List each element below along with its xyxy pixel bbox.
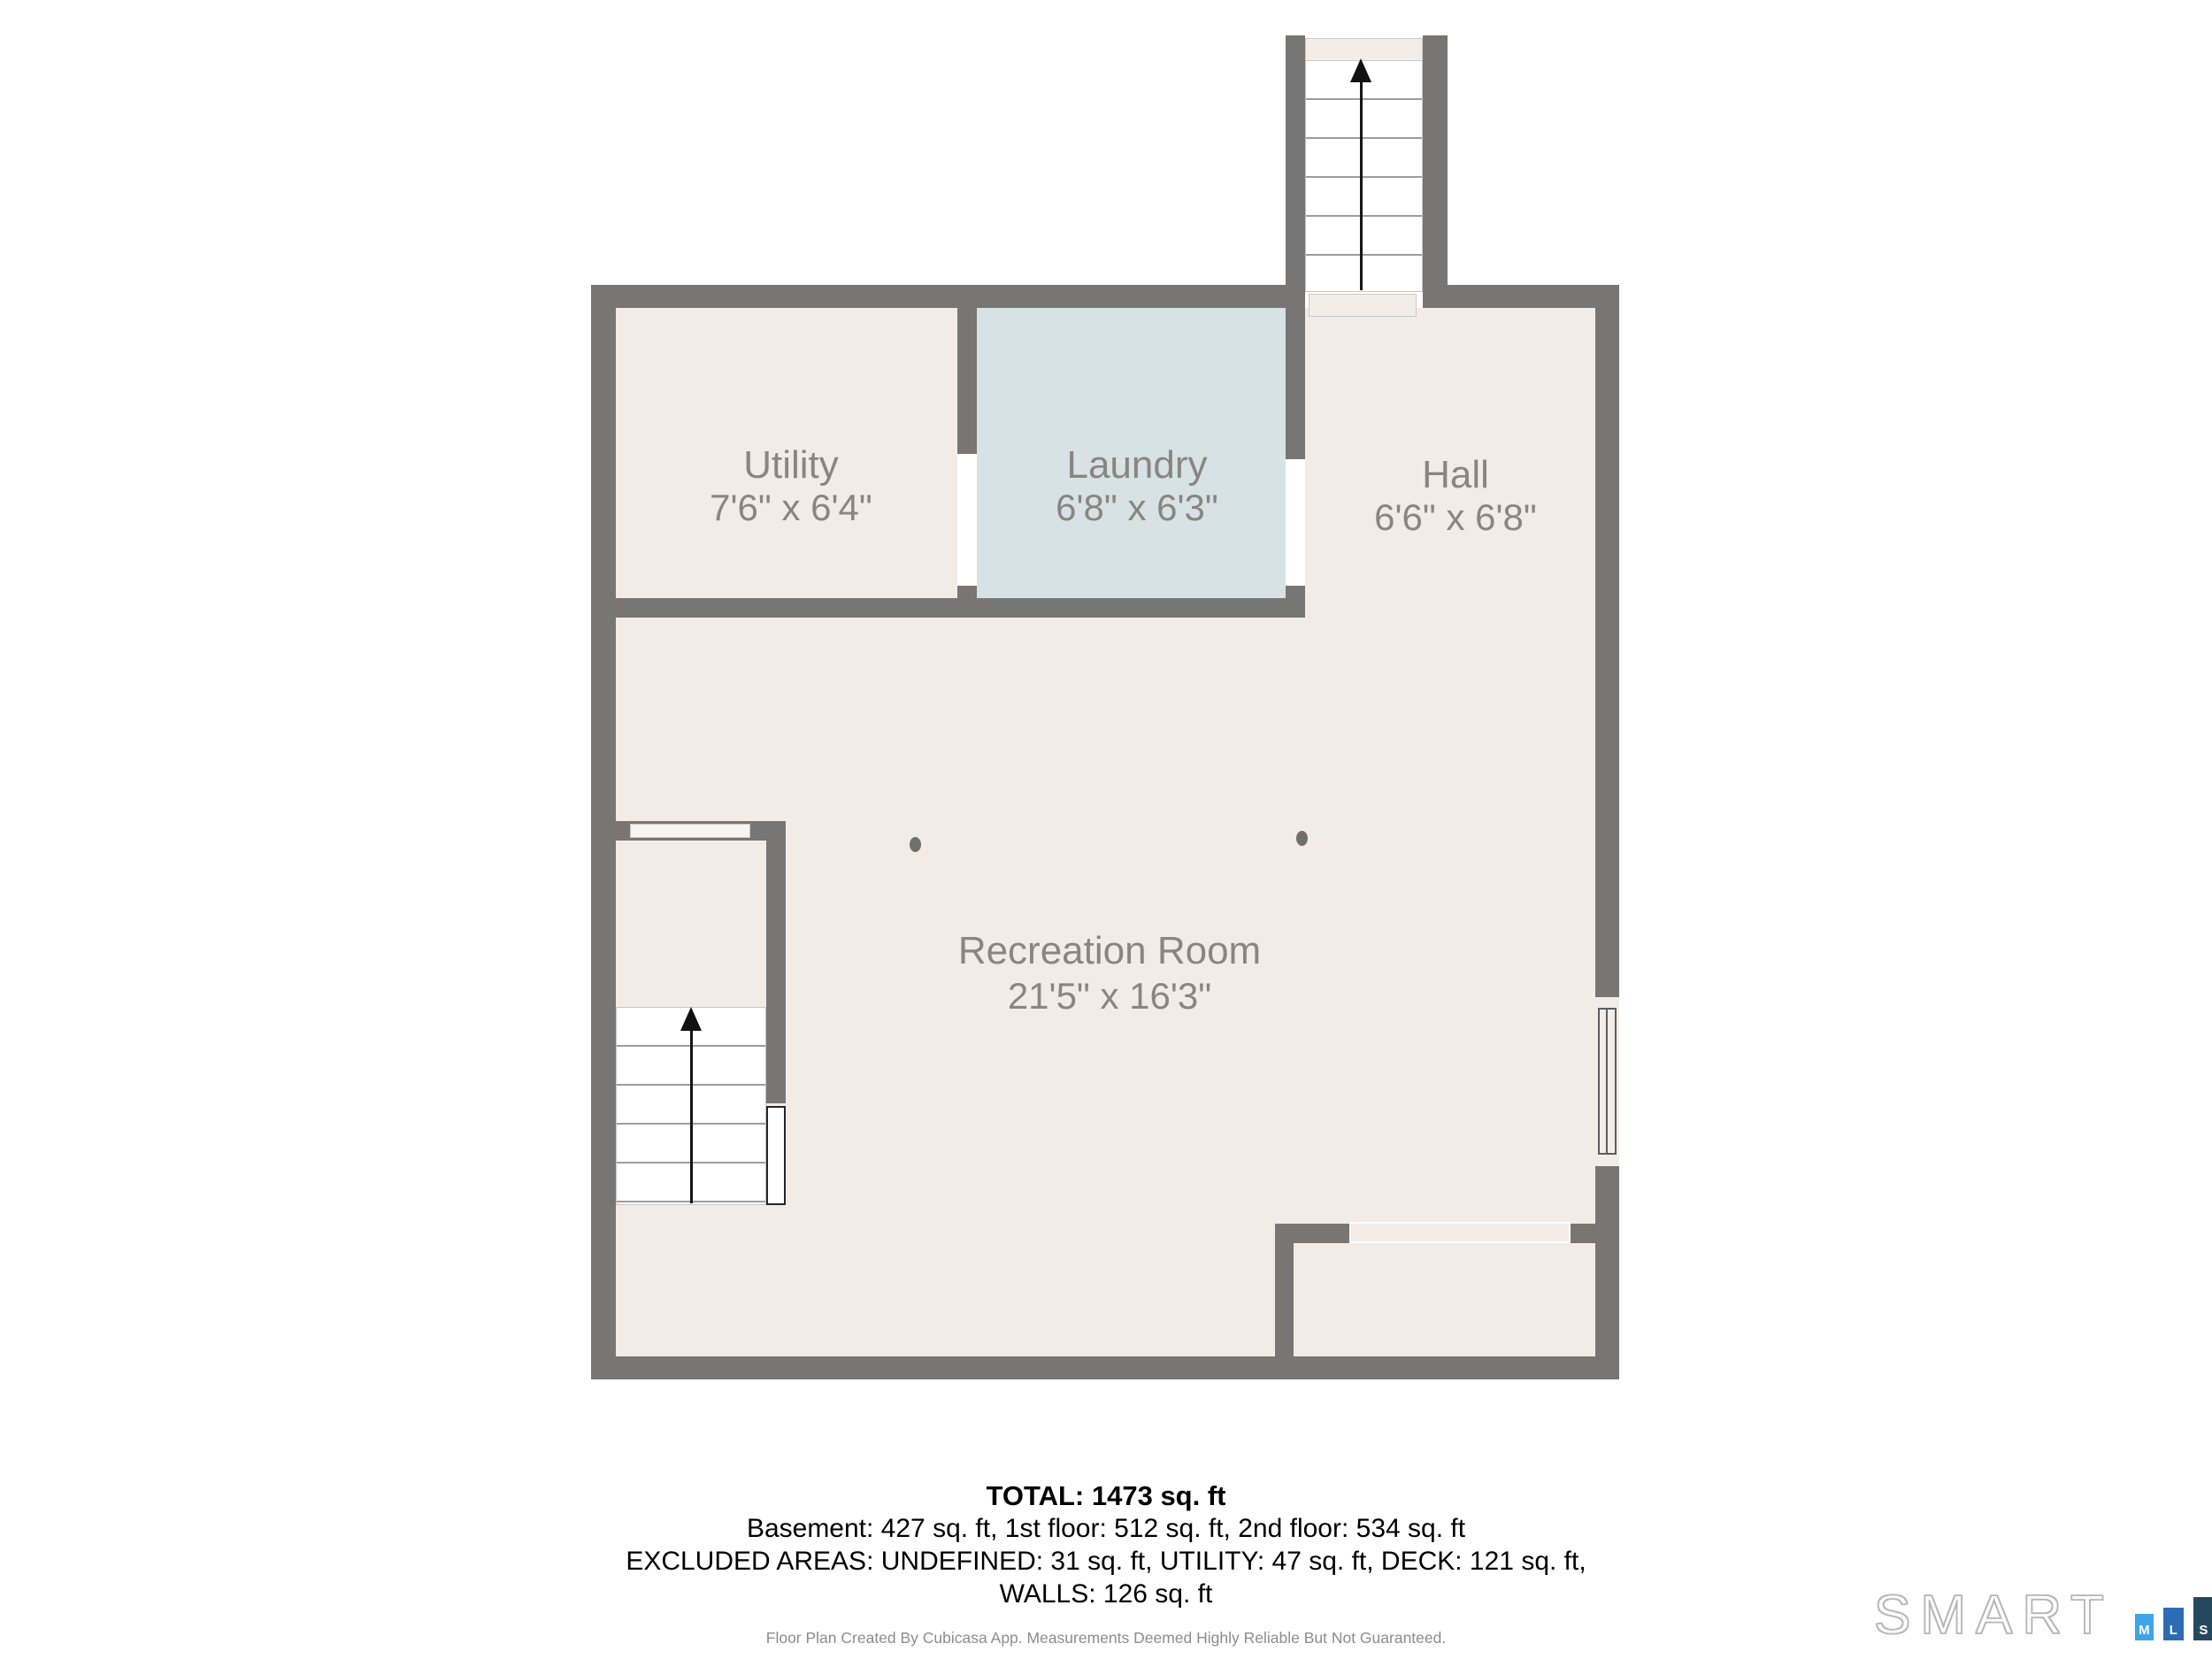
alcove-wall-left: [1275, 1224, 1294, 1356]
excluded-areas-text: EXCLUDED AREAS: UNDEFINED: 31 sq. ft, UT…: [0, 1545, 2212, 1578]
support-column-dot-left: [910, 837, 921, 852]
mls-logo-bars: M L S: [2125, 1597, 2212, 1640]
door-opening-utility-laundry: [957, 454, 977, 586]
floor-plan: Utility 7'6" x 6'4" Laundry 6'8" x 6'3" …: [0, 0, 2212, 1659]
alcove-door-threshold: [1349, 1222, 1571, 1243]
utility-room-dims: 7'6" x 6'4": [710, 487, 872, 529]
wall-below-utility-laundry: [591, 598, 1305, 618]
mls-bar-m: M: [2135, 1614, 2154, 1640]
top-stairs-up-arrow-icon: [1350, 58, 1371, 82]
hall-room-dims: 6'6" x 6'8": [1374, 496, 1537, 539]
recreation-room-dims: 21'5" x 16'3": [1008, 975, 1211, 1018]
stairwell-wall-right: [1423, 35, 1448, 308]
exterior-wall-right: [1595, 285, 1619, 1379]
exterior-wall-bottom: [591, 1356, 1619, 1379]
left-stairs-door-leaf: [766, 1106, 786, 1205]
floor-areas-text: Basement: 427 sq. ft, 1st floor: 512 sq.…: [0, 1512, 2212, 1545]
stairwell-wall-left: [1286, 35, 1305, 308]
laundry-room-label: Laundry: [1066, 443, 1207, 488]
laundry-room-dims: 6'8" x 6'3": [1056, 487, 1218, 529]
exterior-wall-left: [591, 285, 616, 1379]
alcove-wall-top-left-segment: [1275, 1224, 1349, 1243]
window-mid-line: [1606, 1010, 1608, 1153]
support-column-dot-right: [1296, 831, 1308, 846]
door-opening-laundry-hall: [1286, 459, 1305, 586]
exterior-wall-top-right-segment: [1448, 285, 1619, 308]
left-stairs-direction-line: [690, 1030, 693, 1203]
smart-mls-logo: SMART M L S: [1874, 1589, 2212, 1640]
top-stairs-direction-line: [1360, 81, 1363, 290]
exterior-wall-top-left-segment: [591, 285, 1286, 308]
recreation-room-label: Recreation Room: [958, 929, 1261, 973]
alcove-wall-top-right-segment: [1571, 1224, 1595, 1243]
utility-room-label: Utility: [743, 443, 839, 488]
top-stairs-hall-threshold: [1309, 294, 1417, 317]
smart-logo-wordmark: SMART: [1874, 1591, 2114, 1640]
floor-plan-page: Utility 7'6" x 6'4" Laundry 6'8" x 6'3" …: [0, 0, 2212, 1659]
mls-bar-s: S: [2193, 1597, 2212, 1640]
stair-enclosure-opening: [630, 824, 750, 838]
top-stairs-treads: [1306, 61, 1422, 291]
mls-bar-l: L: [2163, 1608, 2184, 1640]
hall-room-label: Hall: [1422, 453, 1489, 497]
left-stairs-up-arrow-icon: [680, 1007, 702, 1031]
total-area-text: TOTAL: 1473 sq. ft: [0, 1479, 2212, 1512]
stair-enclosure-wall-right: [766, 821, 786, 1103]
